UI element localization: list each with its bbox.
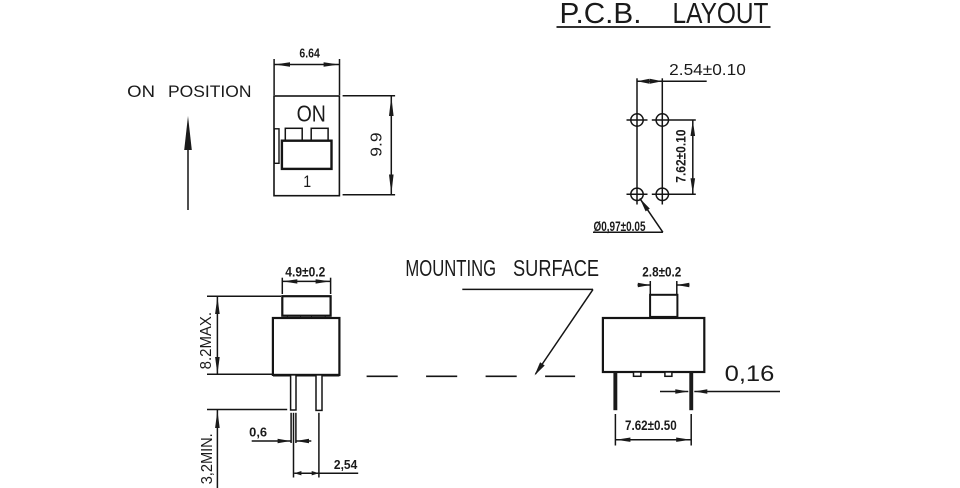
- svg-text:7.62±0.50: 7.62±0.50: [625, 418, 677, 433]
- svg-text:P.C.B.: P.C.B.: [560, 0, 642, 30]
- svg-text:2.8±0.2: 2.8±0.2: [642, 264, 681, 279]
- svg-text:LAYOUT: LAYOUT: [673, 0, 769, 30]
- svg-text:SURFACE: SURFACE: [513, 255, 599, 281]
- svg-text:1: 1: [303, 172, 311, 191]
- svg-text:MOUNTING: MOUNTING: [405, 255, 496, 281]
- svg-text:2.54±0.10: 2.54±0.10: [669, 62, 746, 79]
- svg-text:2,54: 2,54: [334, 457, 358, 472]
- svg-text:6.64: 6.64: [299, 47, 319, 61]
- svg-text:4.9±0.2: 4.9±0.2: [285, 264, 325, 279]
- svg-text:ON: ON: [297, 101, 326, 127]
- svg-text:7.62±0.10: 7.62±0.10: [673, 129, 689, 182]
- svg-text:0,6: 0,6: [249, 426, 267, 440]
- svg-text:ON: ON: [127, 82, 155, 101]
- svg-text:POSITION: POSITION: [168, 82, 252, 101]
- svg-text:0,16: 0,16: [725, 361, 775, 386]
- svg-text:9.9: 9.9: [369, 132, 386, 157]
- svg-text:Ø0,97±0.05: Ø0,97±0.05: [594, 219, 646, 234]
- svg-text:8.2MAX.: 8.2MAX.: [198, 312, 215, 370]
- svg-text:3,2MIN.: 3,2MIN.: [199, 433, 216, 484]
